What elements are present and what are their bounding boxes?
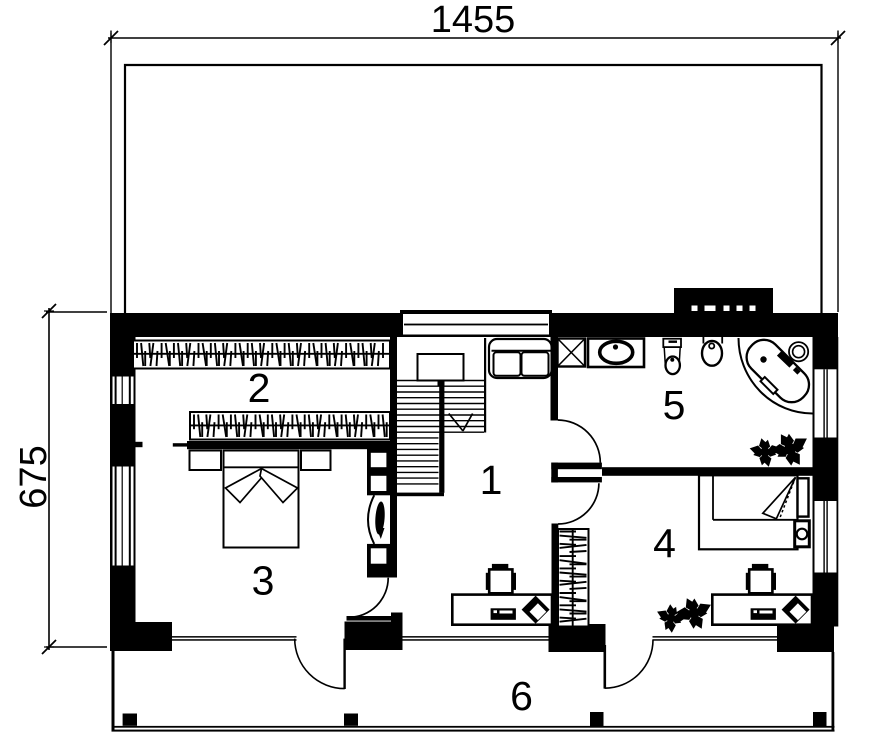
- svg-text:6: 6: [510, 673, 533, 719]
- svg-text:2: 2: [248, 365, 271, 411]
- svg-text:1: 1: [480, 457, 503, 503]
- svg-text:675: 675: [13, 445, 55, 508]
- svg-text:5: 5: [663, 382, 686, 428]
- svg-text:4: 4: [653, 521, 676, 567]
- svg-text:1455: 1455: [431, 0, 516, 41]
- svg-text:3: 3: [252, 558, 275, 604]
